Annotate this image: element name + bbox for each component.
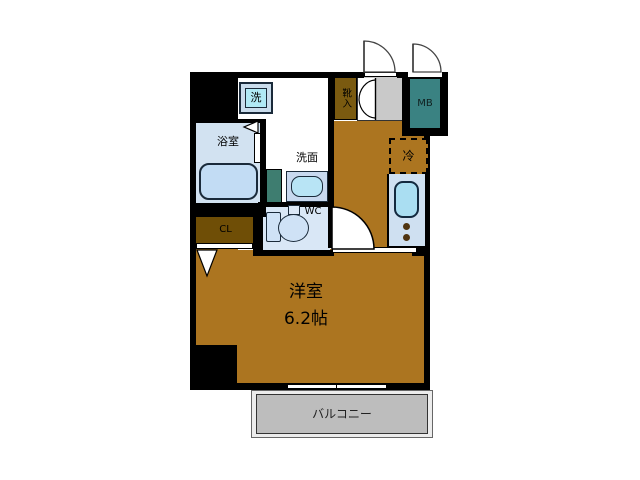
mb-door-arc bbox=[413, 44, 441, 72]
washstand-label: 洗面 bbox=[284, 150, 330, 166]
closet-opening bbox=[196, 243, 253, 249]
burner-dot bbox=[403, 234, 410, 241]
wall-mb-right bbox=[442, 72, 448, 136]
window bbox=[287, 384, 387, 389]
balcony-label: バルコニー bbox=[256, 394, 428, 434]
main-room-name: 洋室 bbox=[236, 279, 376, 306]
bathtub bbox=[199, 163, 258, 200]
main-room-label: 洋室 6.2帖 bbox=[236, 279, 376, 333]
wall-wc-bottom bbox=[256, 250, 334, 256]
main-room-size: 6.2帖 bbox=[236, 306, 376, 333]
window-sash-divider bbox=[336, 384, 337, 389]
room-door-threshold bbox=[332, 247, 417, 253]
floorplan-canvas: 洗 バルコニー 浴室 洗面 WC CL MB 靴入 冷 洋室 6.2帖 bbox=[0, 0, 640, 480]
entrance-door-arc bbox=[364, 41, 395, 72]
wall-corner-mass bbox=[196, 78, 238, 123]
burner-dot bbox=[403, 223, 410, 230]
pillar-bottom-left bbox=[190, 345, 237, 383]
meter-box-label: MB bbox=[408, 77, 442, 130]
washstand-basin bbox=[291, 176, 323, 197]
shoe-cabinet-label: 靴入 bbox=[334, 77, 357, 120]
bathroom-label: 浴室 bbox=[196, 128, 260, 156]
toilet-label: WC bbox=[298, 205, 328, 219]
wall-bathroom-top bbox=[196, 119, 262, 123]
refrigerator-label: 冷 bbox=[389, 138, 428, 174]
genkan-door-panel bbox=[358, 78, 375, 120]
bathroom-sliding-door bbox=[266, 169, 282, 203]
kitchen-sink bbox=[394, 181, 419, 218]
closet-label: CL bbox=[196, 217, 255, 243]
washing-machine-label: 洗 bbox=[245, 88, 267, 108]
entrance-opening bbox=[364, 72, 397, 77]
